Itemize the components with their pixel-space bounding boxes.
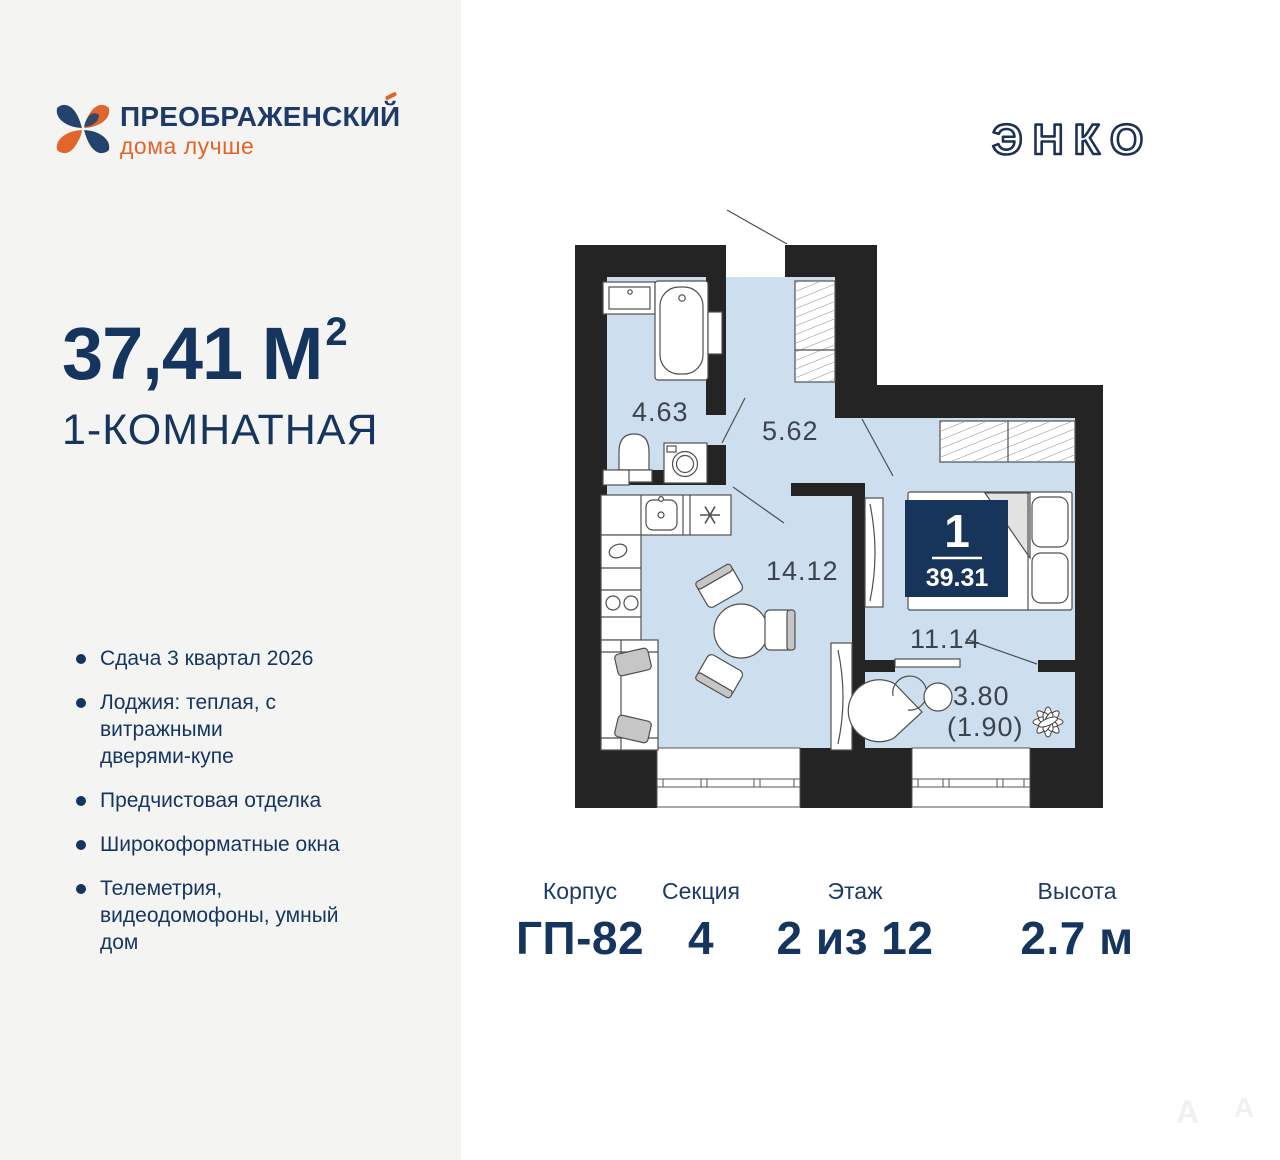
brand-accent-mark (385, 91, 398, 100)
bullet-dot (76, 840, 86, 850)
bathroom-area-label: 4.63 (632, 397, 689, 427)
feature-item: Сдача 3 квартал 2026 (62, 645, 412, 672)
stat-value: 4 (616, 911, 786, 965)
window (912, 748, 1030, 807)
bullet-dot (76, 884, 86, 894)
feature-item: Широкоформатные окна (62, 831, 412, 858)
watermark-letter: А (1234, 1092, 1254, 1124)
brand-name: ПРЕОБРАЖЕНСКИЙ (120, 102, 400, 132)
feature-text: дом (100, 929, 412, 956)
floor-plan: 1 39.31 (560, 195, 1120, 820)
feature-text: видеодомофоны, умный (100, 902, 412, 929)
stat-floor: Этаж 2 из 12 (770, 878, 940, 965)
stat-label: Секция (616, 878, 786, 905)
feature-text: дверями-купе (100, 743, 412, 770)
loggia-door-leaf (831, 643, 852, 750)
loggia-table-icon (924, 683, 952, 711)
hall-area-label: 5.62 (762, 416, 819, 446)
stat-value: 2.7 м (992, 911, 1162, 965)
loggia-area-label: 3.80 (953, 681, 1010, 711)
feature-item: Телеметрия, видеодомофоны, умный дом (62, 875, 412, 956)
bullet-dot (76, 654, 86, 664)
flyer-page: ПРЕОБРАЖЕНСКИЙ дома лучше 37,41 М2 1-КОМ… (0, 0, 1280, 1160)
stat-height: Высота 2.7 м (992, 878, 1162, 965)
stat-label: Этаж (770, 878, 940, 905)
feature-text: Сдача 3 квартал 2026 (100, 645, 412, 672)
brand-tagline: дома лучше (120, 133, 400, 160)
developer-logo: ЭНКО (988, 110, 1213, 168)
feature-item: Предчистовая отделка (62, 787, 412, 814)
brand-flower-icon (55, 98, 111, 160)
feature-text: витражными (100, 716, 412, 743)
stat-label: Высота (992, 878, 1162, 905)
brand-logo: ПРЕОБРАЖЕНСКИЙ дома лучше (55, 98, 400, 160)
feature-text: Предчистовая отделка (100, 787, 412, 814)
wardrobe-icon (795, 281, 835, 382)
bullet-dot (76, 796, 86, 806)
feature-text: Широкоформатные окна (100, 831, 412, 858)
badge-total-area: 39.31 (926, 564, 989, 592)
loggia-rail (895, 659, 960, 667)
badge-rooms-count: 1 (944, 505, 970, 557)
stat-value: 2 из 12 (770, 911, 940, 965)
watermark-letter: А (1176, 1094, 1199, 1131)
apartment-type-title: 1-КОМНАТНАЯ (62, 406, 379, 455)
sofa-icon (601, 640, 658, 750)
feature-text: Телеметрия, (100, 875, 412, 902)
area-superscript: 2 (325, 310, 346, 354)
stat-section: Секция 4 (616, 878, 786, 965)
loggia-reduced-area-label: (1.90) (947, 712, 1024, 742)
bath-shelf (603, 470, 629, 485)
developer-logo-text: ЭНКО (992, 116, 1153, 164)
apartment-badge: 1 39.31 (905, 500, 1008, 597)
window (657, 748, 800, 807)
washing-machine-icon (664, 443, 707, 483)
feature-list: Сдача 3 квартал 2026 Лоджия: теплая, с в… (62, 645, 412, 973)
closet-icon (940, 421, 1075, 462)
kitchen-cabinets (601, 535, 641, 640)
info-panel: ПРЕОБРАЖЕНСКИЙ дома лучше 37,41 М2 1-КОМ… (0, 0, 461, 1160)
feature-item: Лоджия: теплая, с витражными дверями-куп… (62, 689, 412, 770)
feature-text: Лоджия: теплая, с (100, 689, 412, 716)
plant-icon (1033, 707, 1063, 737)
kitchen-area-label: 14.12 (766, 556, 839, 586)
area-value: 37,41 М (62, 312, 322, 395)
bullet-dot (76, 698, 86, 708)
entrance-door-swing (727, 210, 787, 244)
bedroom-area-label: 11.14 (910, 624, 981, 654)
apartment-area-title: 37,41 М2 (62, 292, 347, 394)
bedroom-door-leaf (865, 498, 883, 607)
sink-icon (603, 282, 655, 314)
